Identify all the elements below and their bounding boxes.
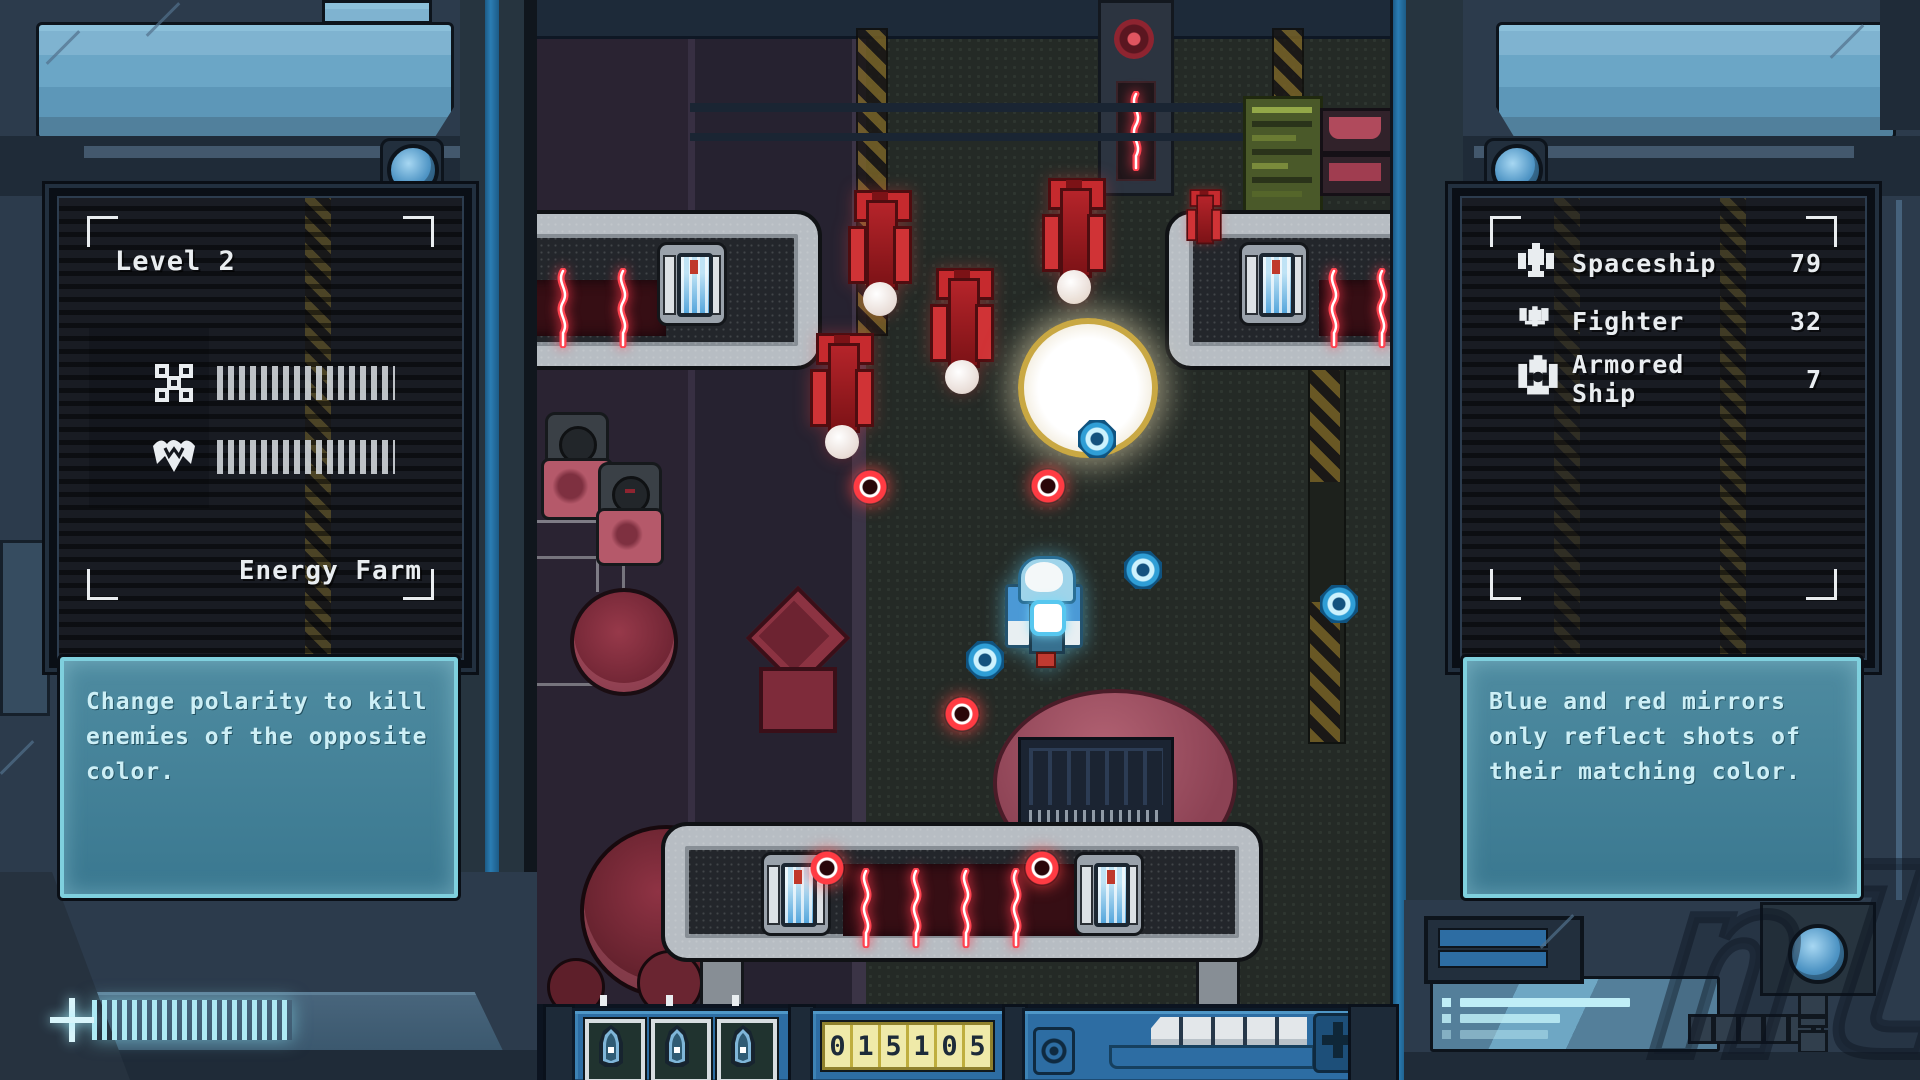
top-wall xyxy=(537,0,1390,39)
machine-tube xyxy=(1116,81,1156,181)
frame-top-left xyxy=(0,0,537,200)
machine-rosette xyxy=(1114,19,1154,59)
charge-gauge xyxy=(92,1000,292,1040)
mission-screen-bezel: Level 2 Energy Farm xyxy=(49,188,472,668)
enemy-ship xyxy=(930,268,994,398)
tip-box: Blue and red mirrors only reflect shots … xyxy=(1463,657,1861,898)
enemy-squadron-icon xyxy=(151,360,197,406)
score-digit: 1 xyxy=(909,1025,937,1067)
mirror-turret xyxy=(1074,852,1144,936)
frame-plate xyxy=(1880,0,1920,130)
list-bullet xyxy=(1442,1030,1451,1039)
red-bullet xyxy=(944,696,980,732)
objective-bar xyxy=(217,440,395,474)
corner-bracket xyxy=(87,216,118,247)
tip-text: Blue and red mirrors only reflect shots … xyxy=(1489,689,1801,785)
mirror-turret xyxy=(1239,242,1309,326)
diamond-crate xyxy=(747,597,841,733)
stats-screen: Spaceship 79 Fighter 32 Armored Ship 7 xyxy=(1460,196,1867,660)
speaker-grille-icon xyxy=(1033,1027,1075,1075)
nintendolife-watermark: nl xyxy=(1644,868,1920,1080)
list-bar xyxy=(1460,1030,1548,1039)
red-electric-arc xyxy=(1325,268,1343,348)
red-bullet xyxy=(809,850,845,886)
red-electric-arc xyxy=(554,268,572,348)
stats-screen-bezel: Spaceship 79 Fighter 32 Armored Ship 7 xyxy=(1452,188,1875,668)
kill-stat-label: Spaceship xyxy=(1572,249,1762,278)
large-red-tank xyxy=(570,588,678,696)
red-electric-arc xyxy=(857,868,875,948)
life-icon xyxy=(585,1019,645,1080)
score-digit: 0 xyxy=(937,1025,965,1067)
tip-box: Change polarity to kill enemies of the o… xyxy=(60,657,458,898)
hud-pin xyxy=(666,995,673,1006)
kill-stat-count: 79 xyxy=(1762,249,1822,278)
energy-bar xyxy=(1151,1017,1307,1045)
list-bullet xyxy=(1442,1014,1451,1023)
pipe xyxy=(537,520,601,523)
red-electric-arc xyxy=(614,268,632,348)
hud-frame-post xyxy=(1348,1004,1399,1080)
score-digit: 5 xyxy=(965,1025,990,1067)
pipe-detail xyxy=(1109,1045,1315,1069)
red-bullet xyxy=(1030,468,1066,504)
frame-scratch xyxy=(0,740,34,775)
kill-stat-count: 7 xyxy=(1762,365,1822,394)
list-bullet xyxy=(1442,998,1451,1007)
score-digit: 5 xyxy=(881,1025,909,1067)
mission-screen: Level 2 Energy Farm xyxy=(57,196,464,660)
score-digit: 1 xyxy=(853,1025,881,1067)
kill-stat-count: 32 xyxy=(1762,307,1822,336)
corner-bracket xyxy=(87,569,118,600)
player-ship xyxy=(1005,556,1083,668)
red-electric-arc xyxy=(907,868,925,948)
red-bullet xyxy=(1024,850,1060,886)
hud-pin xyxy=(600,995,607,1006)
list-bar xyxy=(1460,998,1630,1007)
life-icon xyxy=(717,1019,777,1080)
frame-top-right xyxy=(1404,0,1920,200)
mirror-turret xyxy=(657,242,727,326)
energy-bar-ticks xyxy=(1151,1017,1307,1045)
sparkle-icon xyxy=(50,998,94,1042)
lives-panel xyxy=(572,1008,794,1080)
enemy-ship xyxy=(810,333,874,463)
tip-text: Change polarity to kill enemies of the o… xyxy=(86,689,428,785)
kill-stat-row: Spaceship 79 xyxy=(1514,234,1822,292)
glass-panel xyxy=(1496,22,1896,140)
hud-pin xyxy=(732,995,739,1006)
hud-frame-post xyxy=(543,1004,575,1080)
enemy-ship xyxy=(1042,178,1106,308)
red-electric-arc xyxy=(1007,868,1025,948)
spaceship-icon xyxy=(1514,239,1572,287)
kill-stat-row: Fighter 32 xyxy=(1514,292,1822,350)
fighter-icon xyxy=(1514,299,1572,343)
red-bullet xyxy=(852,469,888,505)
kill-stat-label: Fighter xyxy=(1572,307,1762,336)
enemy-ship xyxy=(1186,189,1221,261)
railing xyxy=(690,103,1310,112)
mirror-platform xyxy=(661,822,1263,962)
slatted-crate xyxy=(1018,737,1174,835)
boss-ship-icon xyxy=(149,434,199,480)
red-tray xyxy=(1320,154,1390,196)
game-viewport[interactable] xyxy=(537,0,1390,1080)
score-digit: 0 xyxy=(825,1025,853,1067)
life-icon xyxy=(651,1019,711,1080)
blue-bullet xyxy=(966,641,1004,679)
list-bar xyxy=(1460,1014,1560,1023)
location-label: Energy Farm xyxy=(239,556,422,586)
glass-panel xyxy=(322,0,432,24)
mirror-platform xyxy=(537,210,822,370)
corner-bracket xyxy=(1490,569,1521,600)
score-display: 0 1 5 1 0 5 xyxy=(822,1022,993,1070)
energy-panel xyxy=(1022,1008,1354,1080)
corner-bracket xyxy=(1806,569,1837,600)
glass-panel xyxy=(36,22,454,140)
corner-bracket xyxy=(403,216,434,247)
railing xyxy=(690,133,1310,141)
kill-stat-label: Armored Ship xyxy=(1572,350,1762,408)
pink-tank xyxy=(596,508,664,566)
kill-stat-row: Armored Ship 7 xyxy=(1514,350,1822,408)
objective-bar xyxy=(217,366,395,400)
red-electric-arc xyxy=(957,868,975,948)
level-label: Level 2 xyxy=(115,246,236,277)
armored-ship-icon xyxy=(1514,353,1572,405)
game-window: nl Level 2 Energy Farm Change polarity t… xyxy=(0,0,1920,1080)
support-pillar xyxy=(1308,340,1346,744)
enemy-ship xyxy=(848,190,912,320)
energy-machine xyxy=(1098,0,1174,196)
red-electric-arc xyxy=(1373,268,1390,348)
frame-plate xyxy=(0,540,50,716)
red-tray xyxy=(1320,108,1390,154)
score-panel: 0 1 5 1 0 5 xyxy=(810,1008,1008,1080)
